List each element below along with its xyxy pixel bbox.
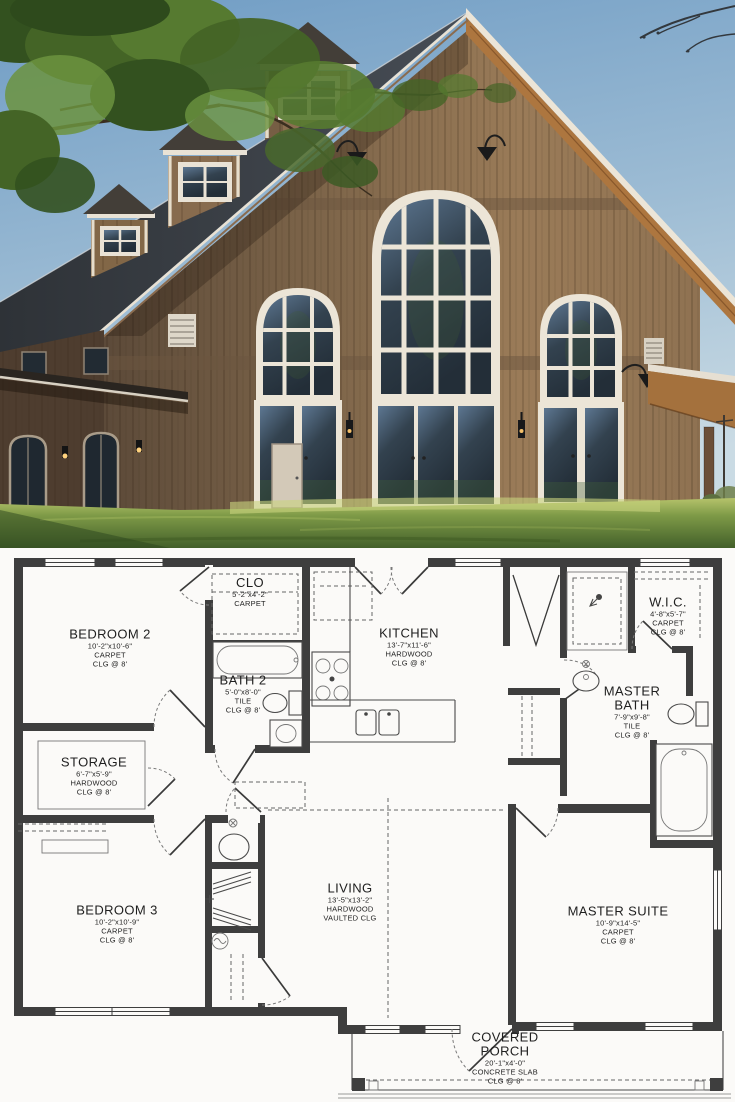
- sink-bath2: [270, 720, 302, 747]
- toilet-master-bath: [668, 702, 708, 726]
- barn-house-photo: [0, 0, 735, 548]
- room-label-bath2: BATH 2 5'-0"x8'-0" TILE CLG @ 8': [211, 674, 275, 715]
- bathtub-master: [656, 744, 712, 836]
- pin-image: BEDROOM 2 10'-2"x10'-6" CARPET CLG @ 8' …: [0, 0, 735, 1102]
- room-label-living: LIVING 13'-5"x13'-2" HARDWOOD VAULTED CL…: [295, 882, 405, 923]
- side-door: [272, 444, 302, 508]
- grand-arched-window: [372, 190, 500, 402]
- room-label-master-bath: MASTER BATH 7'-9"x9'-8" TILE CLG @ 8': [600, 685, 664, 740]
- arched-window-left: [256, 288, 340, 402]
- arched-window-right: [540, 294, 622, 404]
- room-label-kitchen: KITCHEN 13'-7"x11'-6" HARDWOOD CLG @ 8': [339, 627, 479, 668]
- room-label-wic: W.I.C. 4'-8"x5'-7" CARPET CLG @ 8': [628, 596, 708, 637]
- porch-post: [352, 1078, 365, 1091]
- room-label-storage: STORAGE 6'-7"x5'-9" HARDWOOD CLG @ 8': [34, 756, 154, 797]
- room-label-clo: CLO 5'-2"x4'-2" CARPET: [205, 576, 295, 608]
- porch-post: [710, 1078, 723, 1091]
- room-label-bedroom3: BEDROOM 3 10'-2"x10'-9" CARPET CLG @ 8': [47, 904, 187, 945]
- wall-vent-icon: [644, 338, 664, 364]
- room-label-master-suite: MASTER SUITE 10'-9"x14'-5" CARPET CLG @ …: [543, 905, 693, 946]
- french-doors-center: [372, 400, 500, 510]
- room-label-covered-porch: COVERED PORCH 20'-1"x4'-0" CONCRETE SLAB…: [463, 1031, 548, 1086]
- gable-vent-icon: [168, 314, 196, 347]
- room-label-bedroom2: BEDROOM 2 10'-2"x10'-6" CARPET CLG @ 8': [40, 628, 180, 669]
- french-doors-right: [538, 402, 624, 508]
